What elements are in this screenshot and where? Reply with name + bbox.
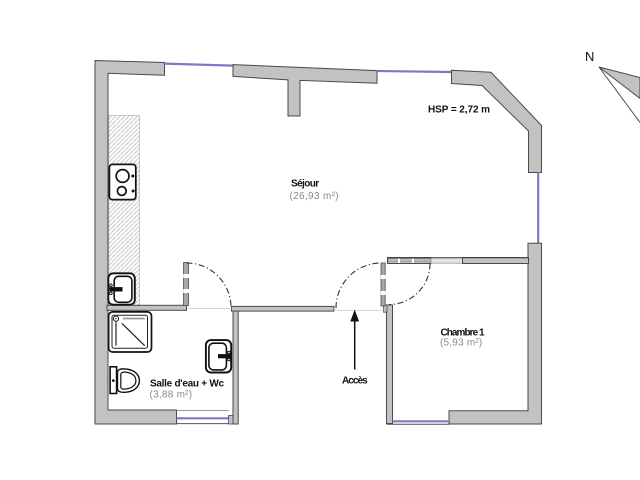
svg-text:HSP = 2,72 m: HSP = 2,72 m [428,105,490,116]
svg-text:Salle d'eau + Wc: Salle d'eau + Wc [150,379,224,390]
svg-text:Accès: Accès [342,376,368,387]
svg-text:(26,93 m²): (26,93 m²) [290,191,339,202]
svg-text:(5,93 m²): (5,93 m²) [440,338,482,349]
svg-text:N: N [585,49,594,64]
svg-text:(3,88 m²): (3,88 m²) [150,390,193,401]
svg-text:Séjour: Séjour [291,178,319,189]
